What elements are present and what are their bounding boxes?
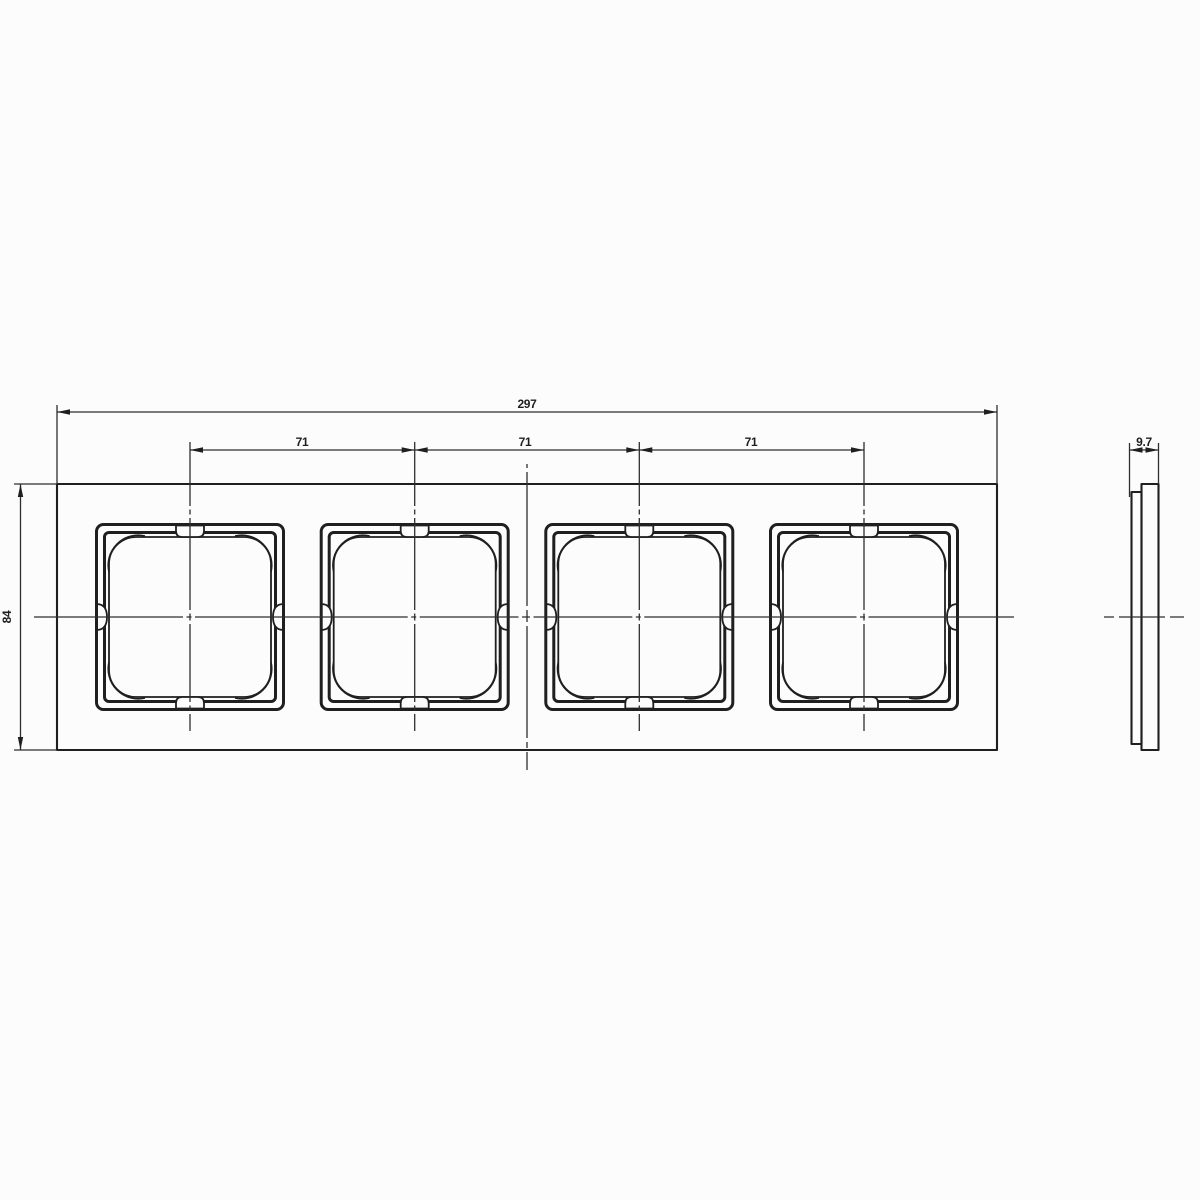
arrowhead: [18, 737, 23, 750]
opening-2: [321, 442, 508, 731]
arrowhead: [984, 409, 997, 414]
arrowhead: [415, 447, 428, 452]
dim-label-pitch-2: 71: [519, 435, 532, 449]
dim-thickness: 9.7: [1130, 435, 1159, 497]
arrowhead: [626, 447, 639, 452]
opening-3: [546, 442, 733, 731]
arrowhead: [18, 484, 23, 497]
arrowhead: [851, 447, 864, 452]
dim-label-thickness: 9.7: [1136, 435, 1152, 449]
technical-drawing-canvas: 297 71 71 71 84 9.7: [0, 0, 1200, 1200]
dim-label-pitch-1: 71: [296, 435, 309, 449]
drawing-page: 297 71 71 71 84 9.7: [0, 0, 1200, 1200]
side-view-flange: [1132, 492, 1142, 744]
arrowhead: [190, 447, 203, 452]
arrowhead: [402, 447, 415, 452]
dim-label-overall-width: 297: [517, 397, 537, 411]
arrowhead: [639, 447, 652, 452]
opening-1: [97, 442, 284, 731]
arrowhead: [57, 409, 70, 414]
dim-label-pitch-3: 71: [745, 435, 758, 449]
dim-opening-pitch: 71 71 71: [190, 435, 864, 453]
opening-4: [771, 442, 958, 731]
side-view: [1104, 484, 1184, 750]
front-view: [34, 442, 1015, 770]
dim-label-height: 84: [0, 610, 14, 623]
